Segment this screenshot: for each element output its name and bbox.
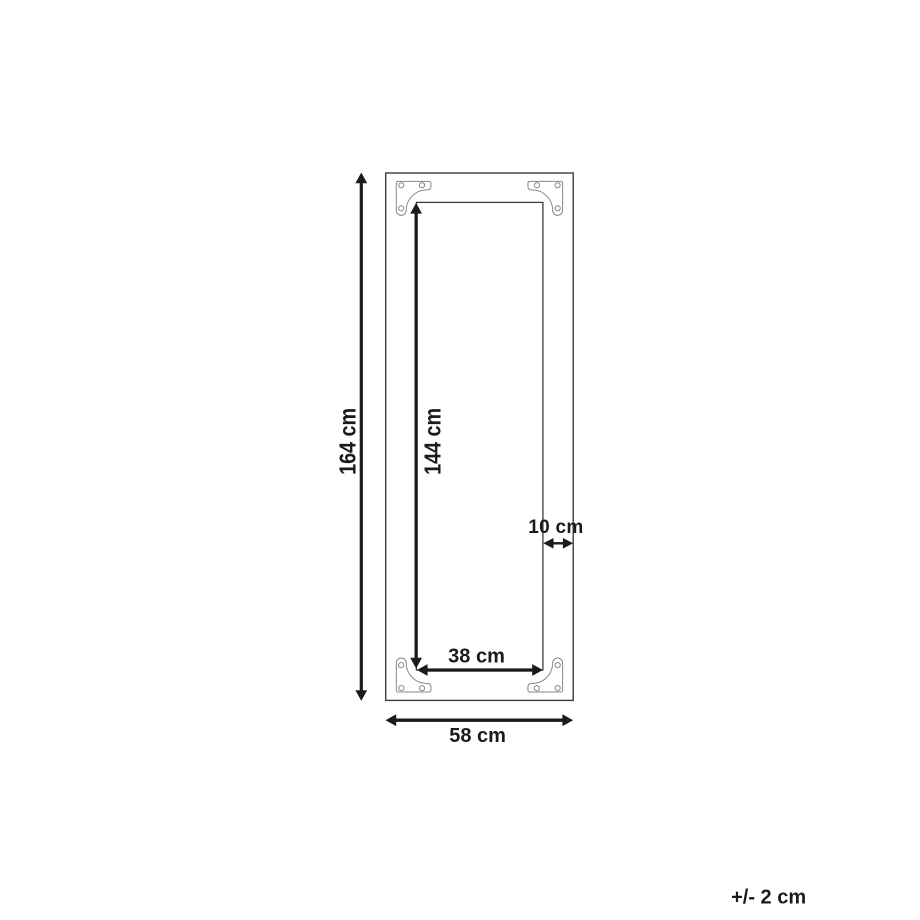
svg-text:+/- 2 cm: +/- 2 cm (731, 887, 806, 909)
svg-text:58 cm: 58 cm (449, 725, 506, 747)
svg-text:164 cm: 164 cm (335, 408, 361, 475)
svg-text:144 cm: 144 cm (420, 408, 446, 475)
svg-text:10 cm: 10 cm (528, 517, 583, 538)
svg-text:38 cm: 38 cm (448, 646, 505, 668)
